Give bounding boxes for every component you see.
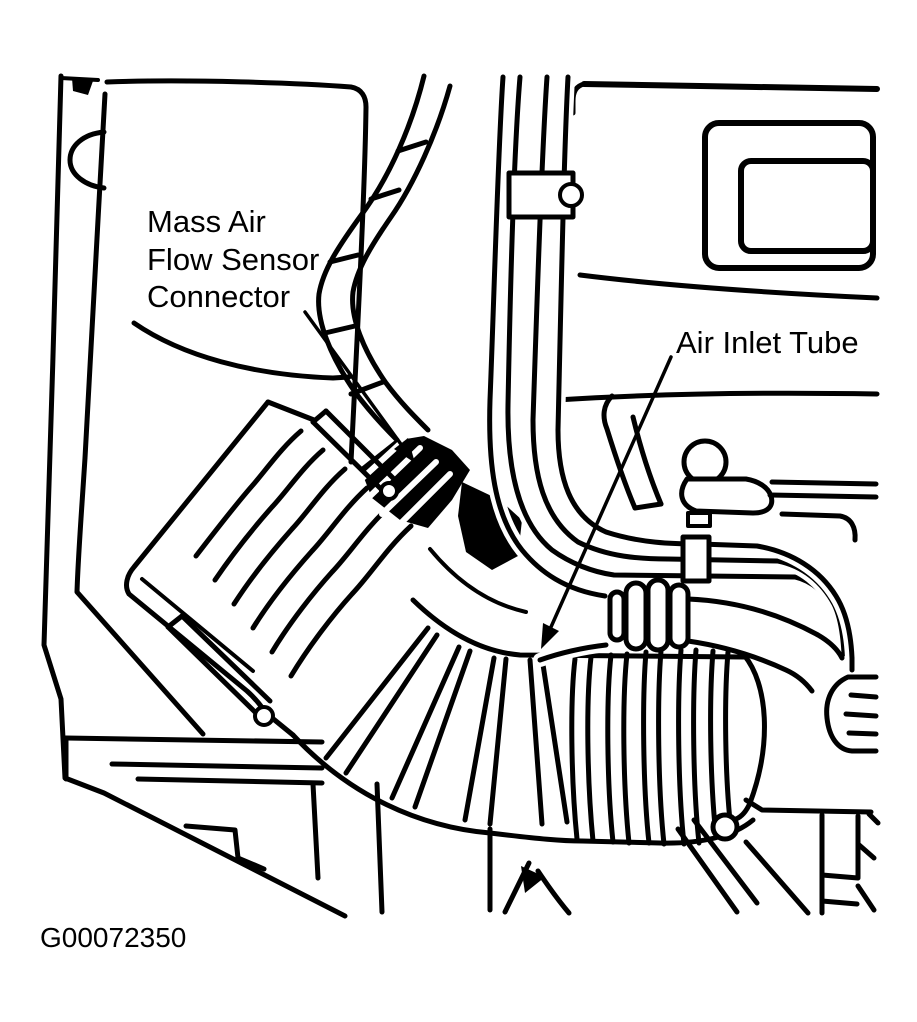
ribbed-corner-hose — [319, 76, 450, 440]
line-art-segment — [782, 514, 855, 540]
line-art-segment — [741, 161, 873, 251]
diagram-canvas: Mass Air Flow Sensor Connector Air Inlet… — [0, 0, 917, 1022]
line-art-segment — [608, 655, 613, 842]
maf-label-line2: Flow Sensor — [147, 242, 319, 277]
line-art-segment — [682, 479, 772, 513]
line-art-segment — [530, 660, 542, 824]
engine-cover-panel — [573, 84, 877, 298]
line-art-segment — [688, 599, 842, 658]
hose-clamp-right — [683, 537, 709, 581]
line-art-segment — [326, 628, 428, 758]
pivot-bolt — [255, 707, 273, 725]
line-art-segment — [624, 654, 629, 843]
clamp-end-circle — [381, 483, 397, 499]
line-art-segment — [313, 784, 318, 878]
line-art-segment — [138, 779, 322, 783]
line-art-segment — [822, 901, 857, 904]
line-art-segment — [705, 123, 873, 268]
line-art-segment — [635, 504, 661, 508]
line-art-segment — [846, 714, 876, 716]
line-art-segment — [584, 84, 877, 89]
line-art-segment — [679, 650, 684, 844]
line-art-segment — [538, 871, 569, 913]
line-art-segment — [186, 826, 238, 858]
line-art-segment — [490, 659, 506, 824]
line-art-segment — [711, 651, 716, 836]
line-art-segment — [580, 275, 877, 298]
line-art-segment — [694, 650, 699, 843]
line-art-segment — [869, 814, 878, 823]
lower-support-structure — [66, 738, 878, 913]
line-art-segment — [542, 658, 567, 822]
line-art-segment — [626, 583, 646, 649]
figure-code: G00072350 — [40, 922, 186, 953]
maf-label-line3: Connector — [147, 279, 290, 314]
line-art-segment — [772, 482, 876, 484]
engine-line-art: Mass Air Flow Sensor Connector Air Inlet… — [0, 0, 917, 1022]
line-art-segment — [557, 393, 877, 400]
line-art-segment — [770, 495, 876, 497]
line-art-segment — [313, 411, 326, 422]
line-art-segment — [112, 764, 322, 768]
line-art-segment — [325, 326, 355, 333]
line-art-segment — [168, 627, 257, 714]
line-art-segment — [726, 652, 731, 830]
line-art-segment — [648, 580, 668, 650]
line-art-segment — [670, 585, 688, 647]
line-art-segment — [346, 635, 437, 773]
line-art-segment — [610, 592, 624, 640]
air-cleaner-box — [70, 81, 366, 734]
line-art-segment — [851, 695, 876, 697]
line-art-segment — [168, 616, 182, 627]
line-art-segment — [849, 733, 876, 734]
line-art-segment — [746, 800, 871, 812]
line-art-segment — [66, 738, 322, 742]
line-art-segment — [688, 513, 710, 526]
line-art-segment — [588, 657, 593, 841]
line-art-segment — [182, 616, 270, 701]
line-art-segment — [268, 402, 314, 420]
bellows-fitting — [610, 580, 688, 650]
maf-label-line1: Mass Air — [147, 204, 266, 239]
line-art-segment — [127, 402, 293, 735]
line-art-segment — [822, 875, 858, 878]
line-art-segment — [572, 659, 577, 839]
line-art-segment — [736, 655, 764, 819]
spring-cuff — [827, 677, 876, 751]
duct-bolt — [713, 815, 737, 839]
line-art-segment — [644, 652, 649, 843]
line-art-segment — [573, 84, 584, 113]
line-art-segment — [134, 323, 349, 378]
air-inlet-label: Air Inlet Tube — [676, 325, 859, 360]
line-art-segment — [72, 78, 93, 95]
air-inlet-arrowhead — [541, 623, 559, 649]
line-art-segment — [858, 886, 874, 910]
clamp-screw — [560, 184, 582, 206]
line-art-segment — [465, 658, 494, 820]
line-art-segment — [659, 651, 664, 844]
